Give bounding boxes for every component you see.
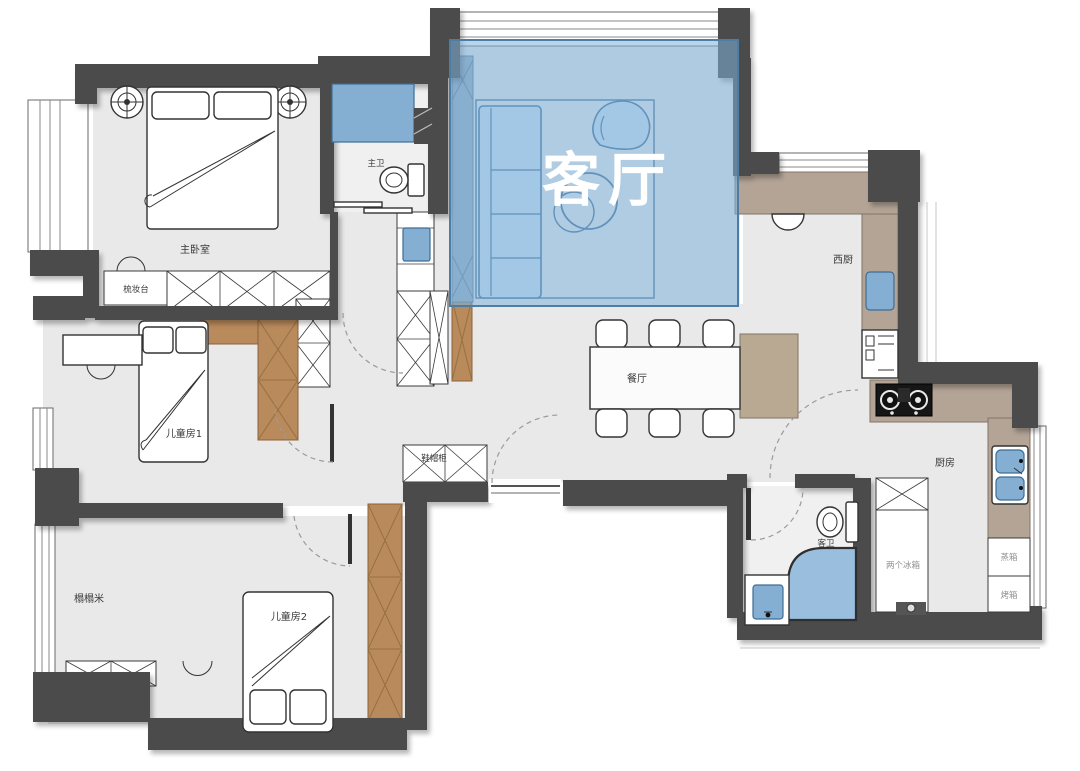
fridge-hinge [896,602,926,615]
master-shower [332,84,414,142]
label-oven: 烤箱 [1000,590,1018,601]
ceiling-light-icon [111,86,143,118]
west-kitchen-sink [866,272,894,310]
floor-plan: 客厅 主卧室 主卫 餐厅 西厨 厨房 客卫 儿童房1 儿童房2 榻榻米 梳妆台 … [0,0,1080,771]
stove-icon [876,384,932,416]
label-steam-oven: 蒸箱 [1000,552,1018,563]
label-dressing-table: 梳妆台 [123,284,149,295]
dining-chairs-top [596,320,734,348]
structural-column [414,108,432,144]
label-tatami: 榻榻米 [74,592,104,605]
label-kids-room-1: 儿童房1 [166,427,202,440]
guest-shower [788,548,856,620]
window-tatami [35,524,55,674]
door-leaf-kids1 [330,404,334,462]
kids1-desk [63,335,142,365]
label-master-bedroom: 主卧室 [180,243,210,256]
dining-chairs-bottom [596,409,734,437]
label-west-kitchen: 西厨 [833,254,853,266]
kitchen-double-sink [992,446,1028,504]
label-two-fridges: 两个冰箱 [886,560,921,571]
label-living-room: 客厅 [542,146,674,214]
window-master-bay [28,100,88,252]
master-toilet-icon [380,164,424,196]
kitchen-island [740,334,798,418]
dining-table [590,347,740,409]
label-kids-room-2: 儿童房2 [271,610,307,623]
label-shoe-cabinet: 鞋帽柜 [421,453,447,464]
label-guest-bathroom: 客卫 [817,538,835,549]
oven-tower [862,330,898,378]
window-kids1 [33,408,53,470]
entry-door [489,479,561,503]
label-master-bathroom: 主卫 [367,158,385,169]
vanity-sink [403,228,430,261]
master-bed [145,87,278,229]
fridge-cabinet [876,478,928,612]
floor-plan-canvas: 客厅 主卧室 主卫 餐厅 西厨 厨房 客卫 儿童房1 儿童房2 榻榻米 梳妆台 … [0,0,1080,771]
kids1-bed [139,321,208,462]
ceiling-light-icon [274,86,306,118]
label-kitchen: 厨房 [935,456,955,469]
door-leaf-tatami [348,514,352,564]
guest-sink [745,575,789,625]
label-dining-room: 餐厅 [627,372,647,385]
tatami-wardrobe [368,504,402,721]
window-west-kitchen [779,153,869,174]
door-leaf-guest-bath [746,488,751,540]
window-kitchen [1028,426,1046,608]
